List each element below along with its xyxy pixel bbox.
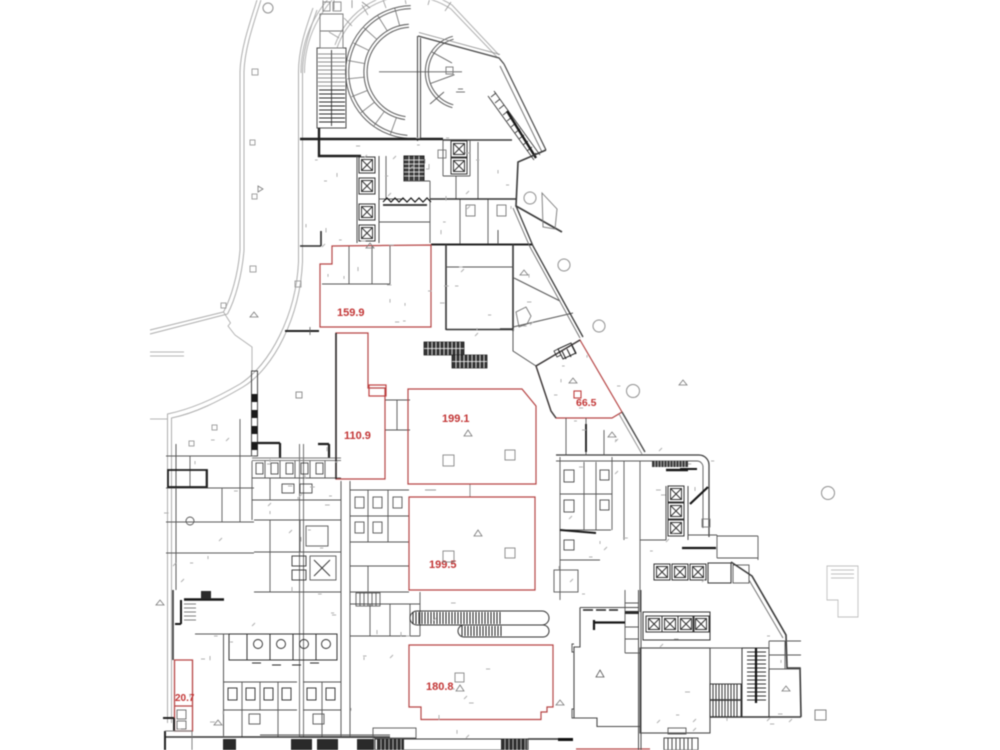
svg-text:199.1: 199.1 (442, 413, 470, 425)
svg-text:20.7: 20.7 (175, 693, 195, 704)
svg-text:66.5: 66.5 (576, 397, 597, 409)
svg-text:180.8: 180.8 (426, 681, 454, 693)
svg-text:159.9: 159.9 (337, 307, 365, 319)
svg-text:110.9: 110.9 (344, 430, 371, 442)
